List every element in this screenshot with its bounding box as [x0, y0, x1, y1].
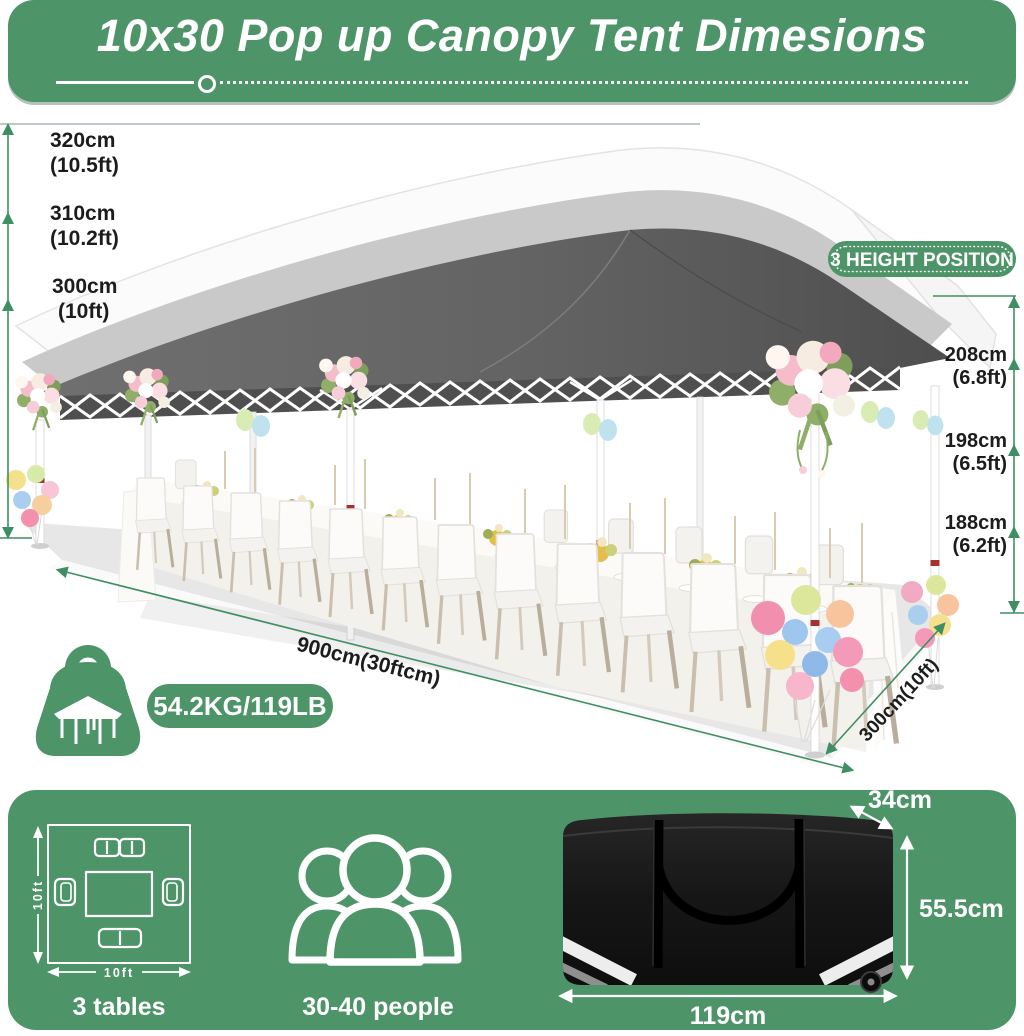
- height-300-ft: (10ft): [58, 300, 109, 323]
- table-diagram-width-label: 10ft: [104, 966, 134, 980]
- footer-panel: 10ft 10ft 3 tables 30-40 people: [0, 785, 1024, 1036]
- weight-badge: 54.2KG/119LB: [147, 684, 333, 728]
- height-310-ft: (10.2ft): [50, 227, 119, 250]
- tent-dimensions-scene: 320cm (10.5ft) 310cm (10.2ft) 300cm (10f…: [0, 100, 1024, 795]
- height-300-cm: 300cm: [52, 275, 117, 298]
- carry-bag-graphic: [548, 813, 908, 992]
- title-underline-circle: [198, 75, 216, 93]
- bag-height-label: 55.5cm: [919, 895, 1004, 923]
- height-198-ft: (6.5ft): [953, 453, 1007, 475]
- title-underline-dotted: [220, 81, 968, 84]
- height-208-cm: 208cm: [945, 344, 1007, 366]
- height-188-ft: (6.2ft): [953, 535, 1007, 557]
- bag-width-label: 119cm: [690, 1002, 766, 1030]
- tables-caption: 3 tables: [72, 993, 165, 1021]
- height-320-ft: (10.5ft): [50, 154, 119, 177]
- people-caption: 30-40 people: [302, 993, 454, 1021]
- height-188-cm: 188cm: [945, 512, 1007, 534]
- height-310-cm: 310cm: [50, 202, 115, 225]
- weight-kettlebell-icon: [36, 645, 140, 756]
- right-height-measurement: 208cm (6.8ft) 198cm (6.5ft) 188cm (6.2ft…: [933, 296, 1024, 613]
- height-198-cm: 198cm: [945, 430, 1007, 452]
- weight-badge-label: 54.2KG/119LB: [153, 691, 326, 721]
- page: { "header": { "title": "10x30 Pop up Can…: [0, 0, 1024, 1036]
- page-title: 10x30 Pop up Canopy Tent Dimesions: [8, 0, 1016, 62]
- height-320-cm: 320cm: [50, 129, 115, 152]
- bag-depth-label: 34cm: [868, 786, 932, 814]
- title-underline-solid: [56, 81, 194, 84]
- height-208-ft: (6.8ft): [953, 367, 1007, 389]
- table-diagram-height-label: 10ft: [31, 880, 45, 910]
- height-position-badge-label: 3 HEIGHT POSITION: [830, 250, 1014, 271]
- people-group-icon: [292, 838, 458, 962]
- height-position-badge: 3 HEIGHT POSITION: [828, 241, 1016, 277]
- header-banner: 10x30 Pop up Canopy Tent Dimesions: [8, 0, 1016, 102]
